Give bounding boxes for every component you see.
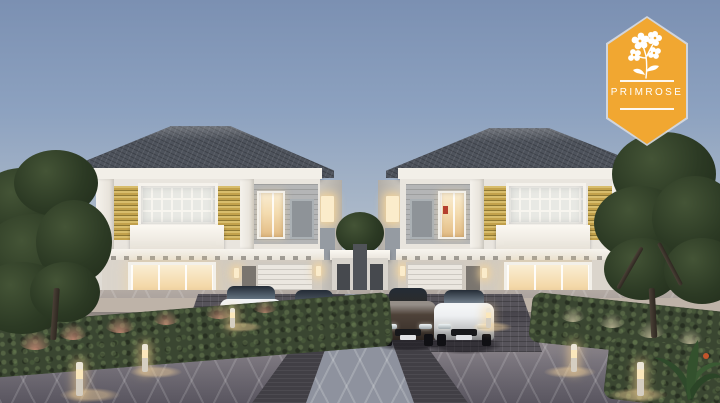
right-house-wall-lamp-2 — [482, 268, 487, 278]
left-house-upper-door-panel — [290, 199, 314, 239]
bollard-light — [142, 344, 148, 372]
right-house-side-lit-window — [386, 196, 399, 222]
left-house-wall-lamp-2 — [316, 266, 321, 276]
left-house-fascia — [84, 168, 322, 179]
left-house-side-lit-window — [321, 196, 334, 222]
left-house-lattice-window — [138, 183, 218, 227]
bollard-glow — [472, 322, 512, 332]
right-house-upper-lit-window — [438, 191, 466, 239]
pale-grass-tuft — [560, 306, 586, 322]
tree-left-canopy — [30, 262, 100, 322]
car-wheel — [437, 334, 446, 346]
bollard-light — [637, 362, 644, 396]
left-house-mid-pillar — [240, 179, 254, 249]
badge-rule-bottom — [620, 108, 674, 110]
bollard-light — [76, 362, 83, 396]
bollard-glow — [222, 322, 262, 332]
pink-grass-tuft — [152, 309, 180, 325]
left-house-balcony-parapet — [130, 225, 224, 249]
right-house-lattice-window — [506, 183, 586, 227]
car-white-sedan — [434, 290, 494, 344]
bollard-glow — [130, 366, 182, 378]
bollard-light — [230, 308, 235, 328]
car-headlight — [419, 324, 432, 329]
left-house-wall-lamp-1 — [234, 268, 239, 278]
car-wheel — [424, 334, 433, 346]
pink-grass-tuft — [58, 322, 88, 340]
primrose-badge: PRIMROSE — [606, 16, 688, 146]
tropical-plant — [648, 318, 720, 403]
right-house-red-chair-accent — [443, 206, 448, 214]
badge-label: PRIMROSE — [606, 87, 688, 98]
car-license-plate — [456, 335, 472, 340]
right-house-balcony-parapet — [496, 225, 590, 249]
bollard-glow — [544, 366, 596, 378]
car-license-plate — [400, 335, 416, 340]
right-house-upper-door-panel — [410, 199, 434, 239]
primrose-flower-icon — [622, 28, 672, 80]
right-house-mid-pillar — [470, 179, 484, 249]
pink-grass-tuft — [104, 315, 136, 333]
bollard-light — [571, 344, 577, 372]
car-headlight — [438, 324, 451, 329]
car-wheel — [482, 334, 491, 346]
primrose-house-rendering: PRIMROSE — [0, 0, 720, 403]
pink-grass-tuft — [252, 299, 278, 313]
right-house-fascia — [398, 168, 636, 179]
pale-grass-tuft — [598, 312, 626, 328]
left-house-upper-lit-window — [257, 191, 285, 239]
badge-rule-top — [620, 80, 674, 82]
bollard-light — [486, 308, 491, 328]
right-house-wall-lamp-1 — [400, 266, 405, 276]
bollard-glow — [60, 388, 120, 402]
